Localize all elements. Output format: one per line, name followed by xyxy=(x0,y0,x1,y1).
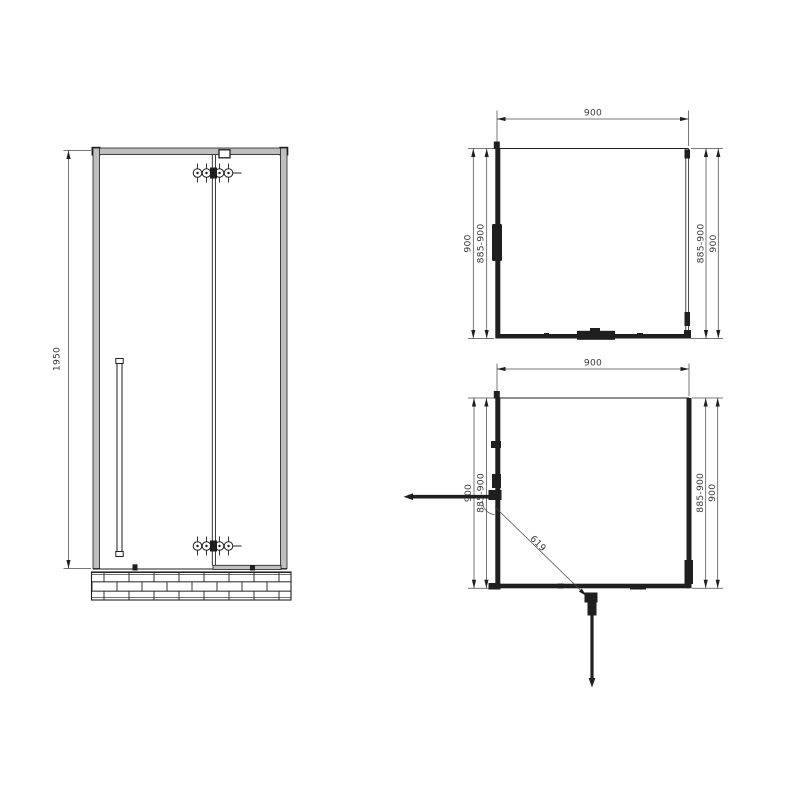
plan-open-left-outer-label: 900 xyxy=(463,484,474,502)
hinge-plan-icon xyxy=(577,331,615,340)
bottom-fixing-block-left xyxy=(133,564,138,570)
plan-closed-width-label: 900 xyxy=(584,108,602,119)
drawing-sheet: 1950 xyxy=(0,0,800,800)
plan-open-right-inner-label: 885-900 xyxy=(695,473,706,513)
plan-open-left-inner-label: 885-900 xyxy=(476,473,487,513)
frame-bottom-rail xyxy=(213,565,281,569)
plan-closed-left-inner-label: 885-900 xyxy=(476,224,487,264)
handle-plan-icon xyxy=(492,224,502,261)
door-handle xyxy=(116,359,123,557)
plan-closed-right-inner-label: 885-900 xyxy=(696,224,707,264)
bottom-fixing-block-right xyxy=(250,565,255,571)
wall-profile-nub xyxy=(494,142,500,150)
plan-open-width-label: 900 xyxy=(584,358,602,369)
frame-right-stile xyxy=(280,148,287,569)
plan-closed-left-outer-label: 900 xyxy=(462,234,473,252)
frame-left-stile xyxy=(93,148,100,569)
wall-profile-nub xyxy=(494,391,500,399)
top-wall-bracket xyxy=(219,150,230,158)
height-dimension-label: 1950 xyxy=(52,347,63,371)
shower-tray xyxy=(92,572,292,600)
frame-top-rail xyxy=(93,148,287,155)
plan-closed-right-outer-label: 900 xyxy=(708,234,719,252)
technical-drawing-canvas: 1950 xyxy=(0,0,800,800)
plan-open-right-outer-label: 900 xyxy=(707,484,718,502)
